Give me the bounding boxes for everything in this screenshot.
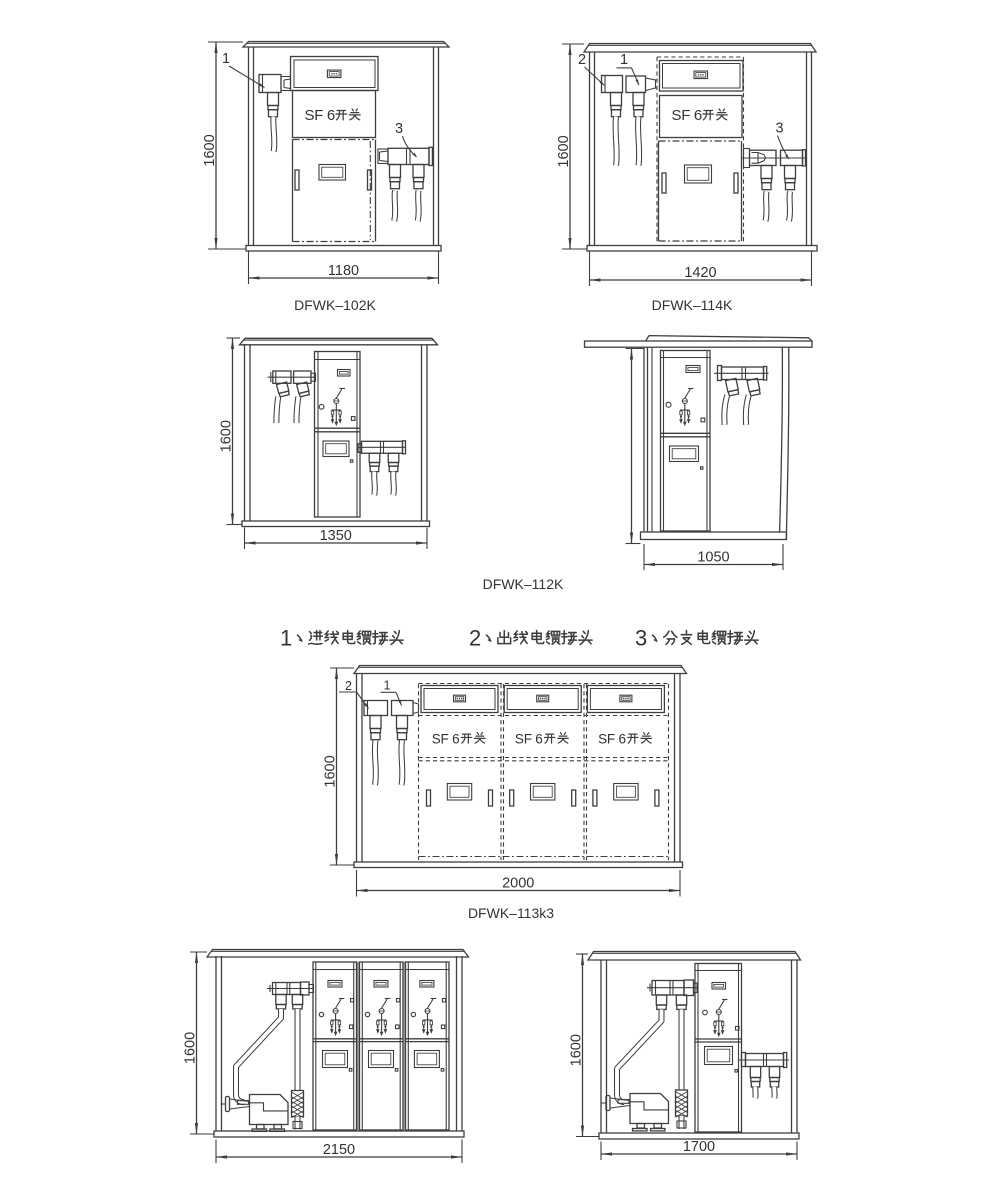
svg-text:SF 6: SF 6 [305,107,335,124]
svg-text:2150: 2150 [323,1142,355,1158]
svg-text:3: 3 [635,626,647,651]
svg-text:2: 2 [578,52,586,68]
svg-text:1600: 1600 [556,135,572,167]
svg-text:1350: 1350 [320,528,352,544]
svg-text:1420: 1420 [684,265,716,281]
svg-text:1600: 1600 [322,755,338,787]
svg-text:1: 1 [384,679,391,693]
svg-text:1: 1 [222,51,230,67]
svg-text:3: 3 [395,121,403,137]
svg-text:DFWK–114K: DFWK–114K [652,297,733,313]
svg-text:1700: 1700 [683,1139,715,1155]
svg-text:1180: 1180 [328,263,359,279]
svg-text:1: 1 [620,52,628,68]
svg-text:DFWK–112K: DFWK–112K [483,576,564,592]
svg-text:DFWK–102K: DFWK–102K [294,297,376,313]
svg-text:1600: 1600 [568,1034,584,1066]
svg-text:SF 6: SF 6 [672,107,702,124]
svg-text:2000: 2000 [502,875,534,891]
svg-text:DFWK–113k3: DFWK–113k3 [468,905,554,921]
svg-text:2: 2 [469,626,481,651]
svg-text:SF 6: SF 6 [432,732,460,747]
svg-text:1600: 1600 [218,420,234,452]
svg-text:1600: 1600 [202,134,218,166]
svg-text:1: 1 [280,626,292,651]
svg-text:SF 6: SF 6 [515,732,543,747]
svg-text:1050: 1050 [697,549,729,565]
svg-text:SF 6: SF 6 [598,732,626,747]
svg-text:3: 3 [776,121,784,137]
svg-text:1600: 1600 [182,1032,198,1064]
svg-text:2: 2 [345,679,352,693]
